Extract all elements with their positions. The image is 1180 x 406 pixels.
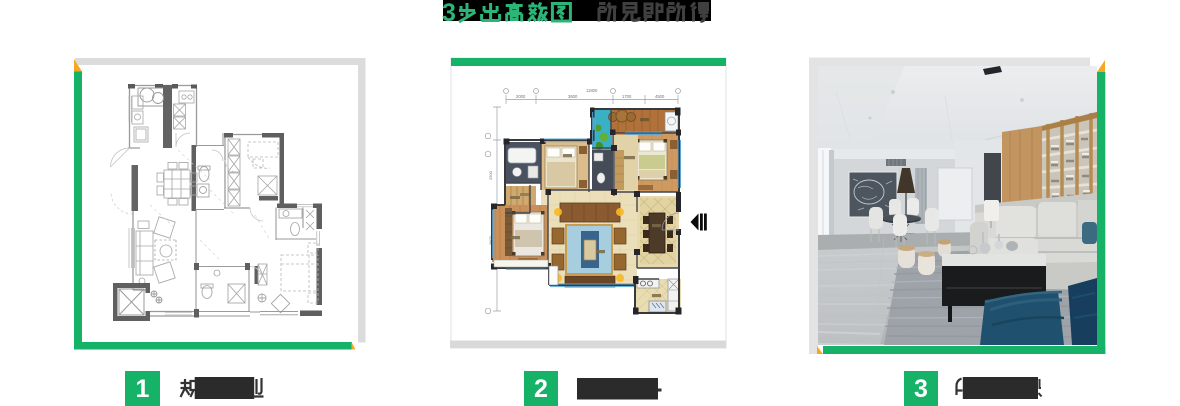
svg-text:3: 3 (442, 0, 456, 27)
svg-text:2500: 2500 (488, 170, 493, 180)
svg-text:1700: 1700 (622, 94, 632, 99)
svg-text:11800: 11800 (586, 88, 598, 93)
svg-text:3: 3 (914, 375, 928, 403)
svg-text:1: 1 (136, 375, 150, 403)
svg-text:2: 2 (534, 375, 548, 403)
svg-text:4500: 4500 (655, 94, 665, 99)
svg-text:2000: 2000 (516, 94, 526, 99)
svg-text:3600: 3600 (568, 94, 578, 99)
